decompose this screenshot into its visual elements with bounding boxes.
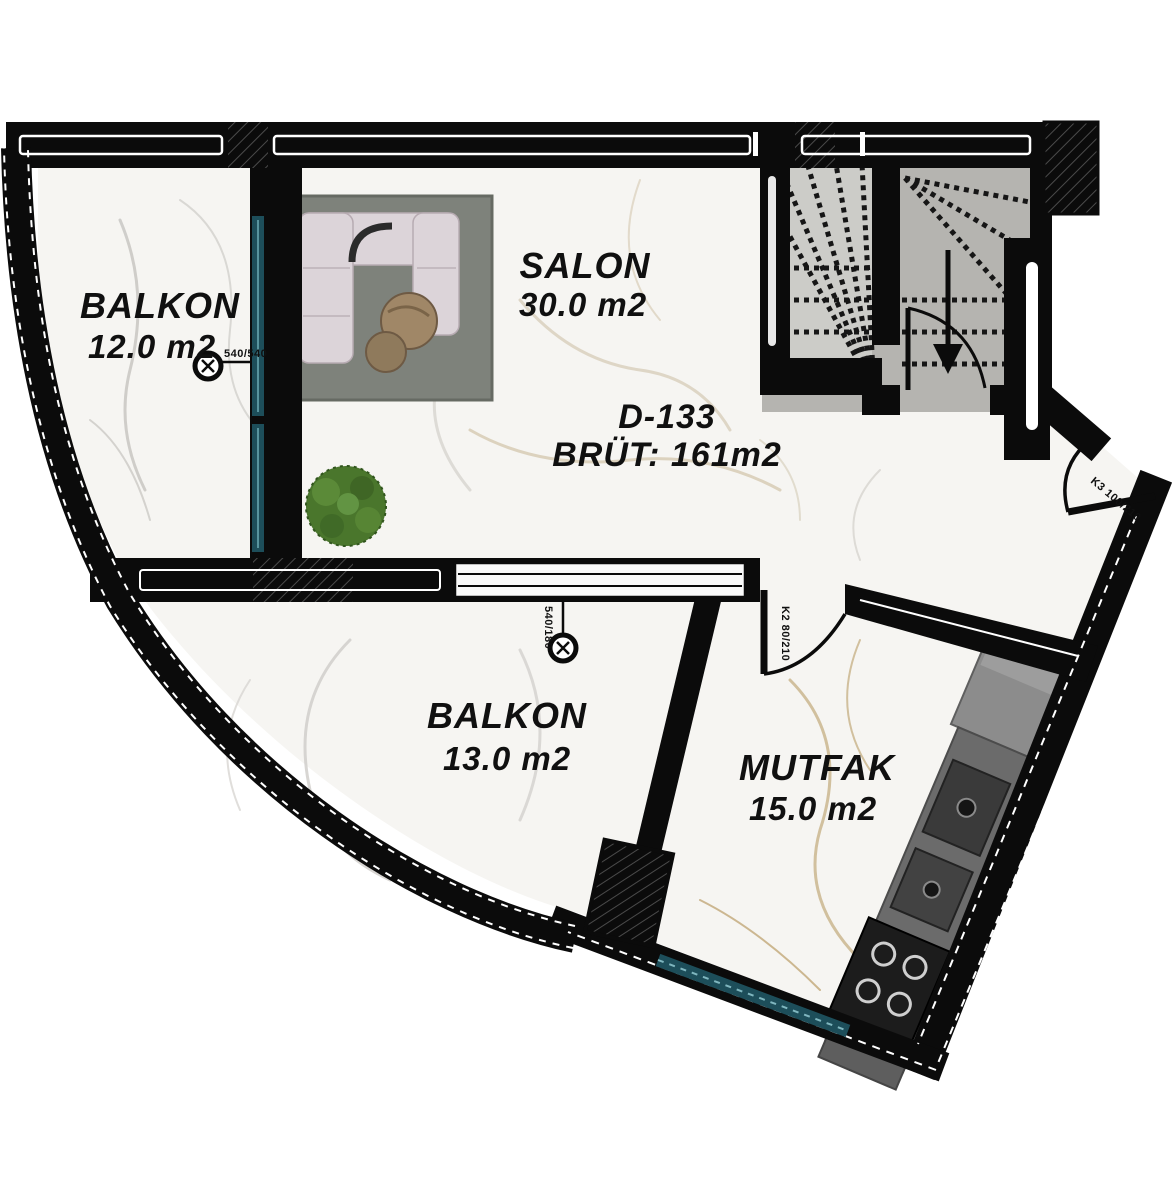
plant: [306, 466, 386, 546]
floor-plan-svg: 540/540 540/180 K2 80/210 K3 100/210 BAL…: [0, 0, 1176, 1200]
unit-gross-area: BRÜT: 161m2: [552, 436, 782, 474]
salon-name: SALON: [520, 245, 651, 286]
stair-left-flight: [790, 168, 872, 364]
column-top-mid: [228, 122, 268, 168]
mutfak-name: MUTFAK: [739, 747, 897, 788]
mutfak-area: 15.0 m2: [749, 790, 877, 827]
stair-wall-divider: [872, 150, 900, 345]
wall-tick-1: [753, 132, 758, 156]
balkon-top-name: BALKON: [80, 285, 240, 326]
stair-wall-bottom-a: [862, 385, 900, 415]
door-kitchen-label: K2 80/210: [779, 606, 791, 661]
balkon-bottom-area: 13.0 m2: [443, 740, 571, 777]
balkon-top-area: 12.0 m2: [88, 328, 216, 365]
balkon-bottom-name: BALKON: [427, 695, 587, 736]
window-salon-balcony: [455, 563, 745, 597]
coffee-table-small: [366, 332, 406, 372]
window-marker-bottom-label: 540/180: [542, 606, 554, 649]
salon-area: 30.0 m2: [519, 286, 647, 323]
floor-plan-page: 540/540 540/180 K2 80/210 K3 100/210 BAL…: [0, 0, 1176, 1200]
window-marker-top-label: 540/540: [224, 348, 267, 360]
shaft-slit: [1026, 262, 1038, 430]
column-top-right: [1044, 122, 1098, 214]
column-middle: [253, 558, 353, 602]
wall-tick-2: [860, 132, 865, 156]
stair-wall-slit: [768, 176, 776, 346]
unit-code: D-133: [618, 398, 716, 436]
